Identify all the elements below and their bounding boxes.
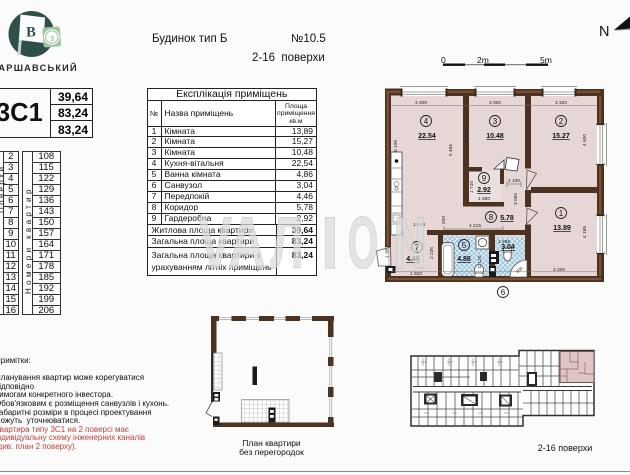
svg-text:1 695: 1 695	[498, 239, 510, 245]
svg-text:2: 2	[559, 117, 564, 126]
svg-text:3 000: 3 000	[489, 100, 501, 106]
svg-text:3 320: 3 320	[553, 267, 565, 273]
svg-text:1 350: 1 350	[385, 246, 391, 258]
svg-text:N: N	[599, 24, 609, 40]
svg-text:10.48: 10.48	[486, 133, 504, 140]
svg-text:5: 5	[462, 241, 467, 250]
svg-text:4 600: 4 600	[582, 134, 588, 146]
svg-text:4 215: 4 215	[469, 223, 481, 229]
svg-text:Поверхи: Поверхи	[0, 165, 6, 213]
svg-text:4.86: 4.86	[457, 256, 471, 263]
svg-text:3 320: 3 320	[555, 100, 567, 106]
svg-text:3.04: 3.04	[501, 244, 515, 251]
svg-text:4 185: 4 185	[582, 226, 588, 238]
svg-text:Номери квартир: Номери квартир	[24, 186, 33, 294]
svg-text:2.92: 2.92	[477, 187, 491, 194]
svg-text:2 235: 2 235	[429, 247, 435, 259]
svg-text:7: 7	[415, 243, 420, 252]
svg-text:3 055: 3 055	[513, 193, 519, 205]
svg-text:3: 3	[493, 117, 498, 126]
svg-text:5.78: 5.78	[500, 215, 514, 222]
svg-text:6 105: 6 105	[393, 140, 399, 152]
svg-text:1 740: 1 740	[469, 181, 475, 193]
svg-text:1 650: 1 650	[478, 196, 490, 202]
svg-text:С 120: С 120	[477, 255, 483, 268]
svg-text:6: 6	[501, 288, 506, 297]
svg-text:13.89: 13.89	[553, 225, 571, 232]
svg-text:1 100: 1 100	[508, 178, 520, 184]
svg-text:4.46: 4.46	[406, 256, 420, 263]
svg-text:22.54: 22.54	[418, 133, 436, 140]
svg-text:200: 200	[441, 216, 447, 224]
svg-text:1 650: 1 650	[413, 222, 425, 228]
svg-text:3 495: 3 495	[464, 130, 470, 142]
svg-text:5 465: 5 465	[448, 144, 454, 156]
svg-text:8: 8	[489, 213, 494, 222]
svg-text:15.27: 15.27	[552, 133, 570, 140]
svg-text:4: 4	[424, 117, 429, 126]
svg-text:3 400: 3 400	[415, 100, 427, 106]
svg-text:9: 9	[482, 174, 487, 183]
svg-text:1: 1	[559, 209, 564, 218]
